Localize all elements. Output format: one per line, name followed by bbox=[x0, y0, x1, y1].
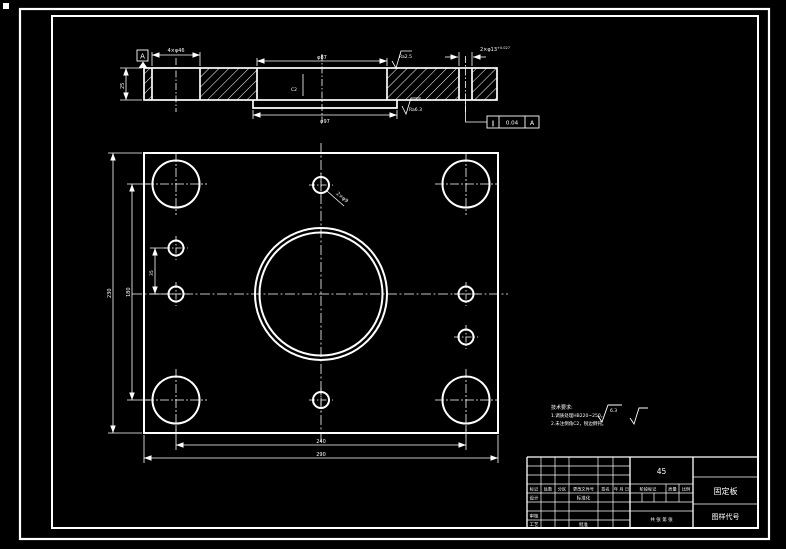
dim-height-outer-label: 230 bbox=[107, 288, 113, 298]
dim-width-inner-label: 240 bbox=[316, 439, 326, 445]
notes-line-1: 1.调质处理HB220~250。 bbox=[551, 412, 605, 419]
notes-other-surfaces-symbol bbox=[630, 408, 648, 424]
top-hole-label: 2×φ9 bbox=[335, 191, 349, 205]
notes-line-2: 2.未注倒角C2，锐边倒钝。 bbox=[551, 420, 606, 427]
datum-triangle bbox=[139, 62, 148, 69]
hatch-areas bbox=[144, 68, 497, 100]
roughness-icon bbox=[630, 408, 648, 424]
pin-dim-tolerance: +0.027 bbox=[497, 46, 510, 50]
rev-header-zone: 分区 bbox=[558, 486, 566, 493]
hatch-left-mid bbox=[200, 68, 257, 100]
fcf-symbol: ∥ bbox=[492, 120, 495, 127]
section-view: 4×φ46 A 25 φ87 bbox=[120, 46, 539, 128]
dim-thickness-label: 25 bbox=[120, 83, 126, 89]
check-label: 审核 bbox=[530, 513, 539, 520]
cad-drawing-canvas: 4×φ46 A 25 φ87 bbox=[0, 0, 786, 549]
scale-label: 比例 bbox=[682, 486, 690, 493]
corner-mark bbox=[3, 3, 9, 9]
dim-small-spacing-label: 35 bbox=[149, 270, 155, 276]
stage-row: 阶段标记 质量 比例 bbox=[640, 486, 691, 493]
feature-control-frame: ∥ 0.04 A bbox=[466, 100, 540, 128]
revision-header-row: 标记 处数 分区 更改文件号 签名 年 月 日 bbox=[530, 486, 629, 493]
dim-height-inner: 180 bbox=[126, 184, 150, 400]
surface-bottom-label: Ra6.3 bbox=[409, 107, 422, 113]
hatch-right-mid bbox=[387, 68, 459, 100]
approve-label: 批准 bbox=[579, 521, 588, 528]
dim-boss-label: φ97 bbox=[320, 119, 330, 125]
dim-pin-holes-label: 2×φ13+0.027 bbox=[480, 46, 510, 53]
dim-bore-label: φ87 bbox=[317, 55, 327, 61]
dim-pin-holes: 2×φ13+0.027 bbox=[445, 46, 510, 66]
top-hole-callout: 2×φ9 bbox=[327, 191, 349, 206]
technical-notes: 技术要求: 1.调质处理HB220~250。 2.未注倒角C2，锐边倒钝。 6.… bbox=[551, 404, 648, 427]
surface-finish-top: Ra2.5 bbox=[392, 51, 412, 68]
rev-header-sign: 签名 bbox=[601, 486, 609, 493]
notes-finish-value: 6.3 bbox=[610, 408, 617, 414]
rev-header-mark: 标记 bbox=[530, 486, 539, 493]
surface-top-label: Ra2.5 bbox=[399, 54, 412, 60]
plan-view: 2×φ9 240 290 230 bbox=[107, 143, 508, 463]
boss-outline bbox=[253, 100, 397, 108]
datum-label: A bbox=[140, 53, 145, 61]
dim-height-inner-label: 180 bbox=[126, 287, 132, 297]
dim-width-inner: 240 bbox=[176, 427, 466, 450]
dim-boss: φ97 bbox=[253, 110, 397, 125]
rev-header-date: 年 月 日 bbox=[614, 486, 629, 493]
chamfer-note: C2 bbox=[291, 74, 303, 96]
datum-feature-symbol: A bbox=[137, 50, 148, 68]
fcf-value: 0.04 bbox=[506, 121, 519, 127]
design-label: 设计 bbox=[530, 495, 539, 502]
title-block: 标记 处数 分区 更改文件号 签名 年 月 日 设计 标准化 审核 工艺 批准 … bbox=[527, 457, 758, 528]
drawing-code: 图样代号 bbox=[712, 512, 740, 521]
dim-small-spacing: 35 bbox=[149, 248, 167, 294]
hatch-right-edge bbox=[472, 68, 497, 100]
plan-centerlines bbox=[132, 143, 508, 444]
dim-width-outer-label: 290 bbox=[316, 452, 326, 458]
sheet-label: 共 张 第 张 bbox=[650, 516, 673, 523]
dim-thickness: 25 bbox=[120, 68, 142, 100]
chamfer-label: C2 bbox=[291, 87, 297, 93]
process-label: 工艺 bbox=[530, 522, 539, 528]
hatch-left-edge bbox=[144, 68, 152, 100]
part-name: 固定板 bbox=[714, 486, 738, 496]
material-value: 45 bbox=[657, 467, 667, 476]
fcf-datum: A bbox=[530, 120, 535, 127]
rev-header-docno: 更改文件号 bbox=[573, 486, 594, 493]
standardize-label: 标准化 bbox=[577, 495, 591, 502]
drawing-sheet: 4×φ46 A 25 φ87 bbox=[0, 0, 786, 549]
sheet-border bbox=[3, 3, 769, 539]
weight-label: 质量 bbox=[668, 486, 676, 493]
dim-corner-hole-label: 4×φ46 bbox=[167, 48, 184, 54]
pin-dim-value: 2×φ13 bbox=[480, 47, 497, 53]
rev-header-count: 处数 bbox=[544, 486, 553, 493]
notes-title: 技术要求: bbox=[551, 404, 573, 411]
fcf-leader bbox=[466, 100, 488, 122]
stage-mark-label: 阶段标记 bbox=[640, 486, 658, 493]
dim-height-outer: 230 bbox=[107, 153, 142, 433]
